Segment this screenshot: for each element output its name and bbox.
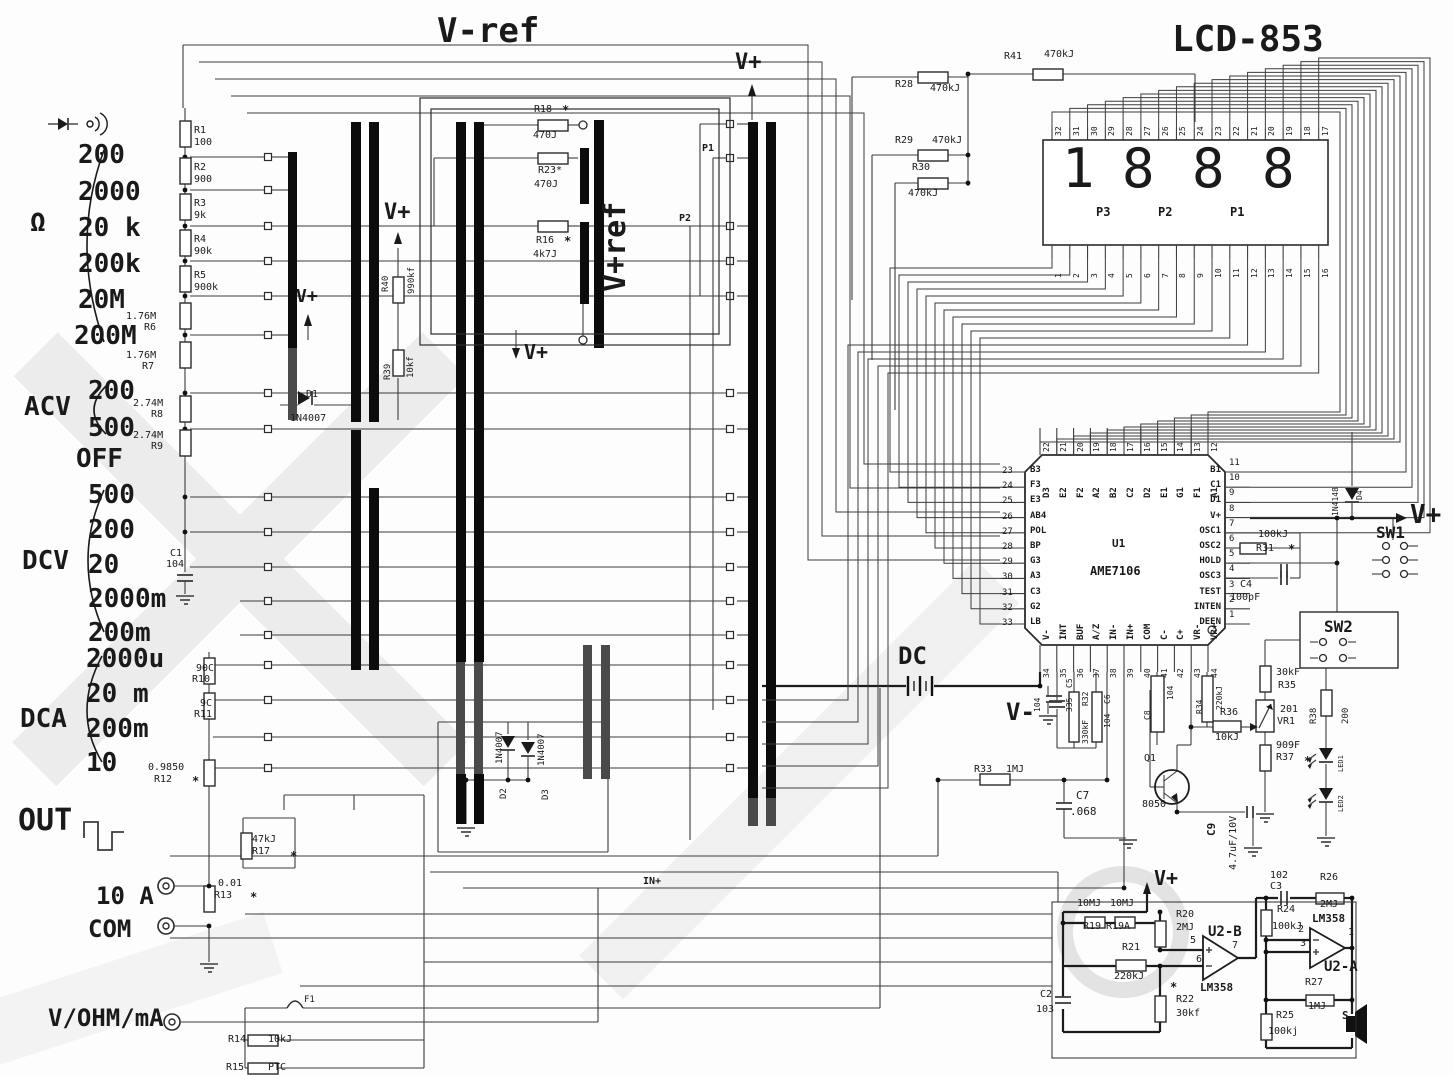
label-ic-pins-bottom-numbers-1: 35	[1060, 668, 1068, 678]
label-components-r20-v: 2MJ	[1176, 923, 1194, 933]
label-components-r14-n: R14	[228, 1035, 246, 1045]
label-ic-pins-top-numbers-8: 14	[1177, 442, 1185, 452]
label-selector-ohm_ranges-5: 200M	[74, 323, 137, 349]
label-components-r11-n: R11	[194, 710, 212, 720]
label-components-r25-v: 100kj	[1268, 1027, 1298, 1037]
label-components-r18-v: 470J	[533, 131, 557, 141]
label-lcd-digits-2: 8	[1192, 142, 1225, 196]
label-ic-pins-bottom-labels-7: C-	[1161, 629, 1170, 640]
label-components-r16-s: *	[564, 235, 571, 247]
label-components-r5-n: R5	[194, 271, 206, 281]
label-lcd-top_pins-14: 18	[1304, 126, 1312, 136]
label-components-r32-n: R32	[1082, 692, 1090, 706]
label-selector-jack_vohmma: V/OHM/mA	[48, 1006, 164, 1030]
ic-ame7106	[1025, 455, 1225, 645]
label-power-vplus: V+	[524, 342, 548, 362]
label-ic-pins-top-labels-3: A2	[1093, 487, 1102, 498]
label-components-r26-n: R26	[1320, 873, 1338, 883]
label-lcd-bottom_pins-14: 15	[1304, 268, 1312, 278]
label-ic-pins-right-labels-10: DEEN	[1199, 618, 1221, 627]
label-components-r41-n: R41	[1004, 52, 1022, 62]
label-ic-pins-bottom-labels-8: C+	[1177, 629, 1186, 640]
label-components-r37-n: R37	[1276, 753, 1294, 763]
label-components-r22-s: *	[1170, 981, 1177, 993]
label-components-r8-v: 2.74M	[133, 399, 163, 409]
label-lcd-bottom_pins-12: 13	[1268, 268, 1276, 278]
label-components-r6-n: R6	[144, 323, 156, 333]
label-lcd-decimal_points-2: P1	[1230, 206, 1244, 218]
label-components-c3-v: 102	[1270, 871, 1288, 881]
label-components-r5-v: 900k	[194, 283, 218, 293]
label-ic-ref: U1	[1112, 538, 1125, 549]
label-ic-pins-bottom-numbers-2: 36	[1077, 668, 1085, 678]
label-selector-dca_label: DCA	[20, 706, 67, 732]
label-ic-pins-left-numbers-4: 27	[1002, 528, 1013, 537]
label-components-r39-n: R39	[384, 364, 393, 380]
label-components-r40-n: R40	[382, 276, 391, 292]
label-ic-pins-top-numbers-7: 15	[1161, 442, 1169, 452]
label-components-d2-n: D2	[500, 788, 509, 799]
label-components-r30-v: 470kJ	[908, 189, 938, 199]
label-components-r34-n: R34	[1196, 700, 1204, 714]
label-ic-pins-top-numbers-10: 12	[1211, 442, 1219, 452]
label-connector-p2: P2	[679, 214, 691, 224]
label-components-r31-n: R31	[1256, 544, 1274, 554]
label-components-d2-v: 1N4007	[496, 731, 505, 764]
label-lcd-bottom_pins-8: 9	[1197, 273, 1205, 278]
label-components-c8-v: 104	[1167, 686, 1175, 700]
label-components-r38-v: 200	[1342, 708, 1351, 724]
label-components-r7-n: R7	[142, 362, 154, 372]
label-components-r21-n: R21	[1122, 943, 1140, 953]
label-ic-pins-top-labels-2: F2	[1077, 487, 1086, 498]
label-ic-pins-right-labels-8: TEST	[1199, 588, 1221, 597]
label-selector-off_label: OFF	[76, 446, 123, 472]
label-lcd-top_pins-15: 17	[1322, 126, 1330, 136]
label-components-r12-v: 0.9850	[148, 763, 184, 773]
label-selector-ohm_ranges-2: 20 k	[78, 215, 141, 241]
label-components-r18-s: *	[562, 104, 569, 116]
label-ic-pins-left-labels-6: G3	[1030, 557, 1041, 566]
label-lcd-bottom_pins-9: 10	[1215, 268, 1223, 278]
label-lcd-bottom_pins-13: 14	[1286, 268, 1294, 278]
label-components-r22-v: 30kf	[1176, 1009, 1200, 1019]
label-lcd-bottom_pins-15: 16	[1322, 268, 1330, 278]
label-components-cv-v: 104	[1034, 698, 1042, 712]
label-power-vplus: V+	[384, 202, 411, 224]
label-ic-pins-right-numbers-5: 6	[1229, 535, 1234, 544]
label-components-r38-n: R38	[1310, 708, 1319, 724]
label-lcd-top_pins-9: 23	[1215, 126, 1223, 136]
label-components-c6-v: 104	[1104, 714, 1112, 728]
label-ic-pins-top-numbers-9: 13	[1194, 442, 1202, 452]
label-lcd-top_pins-11: 21	[1251, 126, 1259, 136]
label-components-r18-n: R18	[534, 105, 552, 115]
label-ic-pins-top-labels-9: F1	[1194, 487, 1203, 498]
label-lcd-bottom_pins-0: 1	[1055, 273, 1063, 278]
label-selector-jack_10a: 10 A	[96, 884, 154, 908]
label-components-r9-n: R9	[151, 442, 163, 452]
label-components-r27-v: 1MJ	[1308, 1002, 1326, 1012]
label-ic-pins-right-labels-3: V+	[1210, 512, 1221, 521]
label-lcd-digits-3: 8	[1262, 142, 1295, 196]
label-selector-dcv_ranges-1: 200	[88, 517, 135, 543]
label-lcd-bottom_pins-3: 4	[1108, 273, 1116, 278]
label-components-r19-n: R19	[1083, 922, 1101, 932]
label-ic-pins-right-numbers-1: 10	[1229, 474, 1240, 483]
label-components-r23-n: R23*	[538, 166, 562, 176]
label-ic-pins-right-numbers-3: 8	[1229, 505, 1234, 514]
label-ic-pins-left-labels-7: A3	[1030, 572, 1041, 581]
label-components-r39-v: 10kf	[407, 356, 416, 378]
label-selector-dca_ranges-3: 10	[86, 750, 117, 776]
label-selector-out_label: OUT	[18, 806, 72, 836]
label-lcd-top_pins-2: 30	[1091, 126, 1099, 136]
label-ic-pins-right-numbers-2: 9	[1229, 489, 1234, 498]
label-ic-pins-top-labels-1: E2	[1060, 487, 1069, 498]
label-components-c4-n: C4	[1240, 580, 1252, 590]
label-amps-speaker: S	[1342, 1010, 1349, 1021]
label-lcd-bottom_pins-5: 6	[1144, 273, 1152, 278]
label-selector-jack_com: COM	[88, 917, 131, 941]
label-ic-pins-left-numbers-0: 23	[1002, 467, 1013, 476]
label-components-c9-n: C9	[1206, 823, 1217, 836]
label-components-c8-n: C8	[1144, 710, 1152, 720]
label-components-r21-v: 220kJ	[1114, 972, 1144, 982]
label-selector-dcv_ranges-4: 200m	[88, 620, 151, 646]
label-components-q1-v: 8050	[1142, 800, 1166, 810]
label-lcd-bottom_pins-6: 7	[1162, 273, 1170, 278]
label-power-dc: DC	[898, 644, 927, 668]
label-ic-pins-top-labels-8: G1	[1177, 487, 1186, 498]
label-ic-pins-left-numbers-7: 30	[1002, 573, 1013, 582]
label-ic-pins-left-labels-8: C3	[1030, 588, 1041, 597]
label-amps-chip: LM358	[1312, 913, 1345, 924]
label-components-r24-n: R24	[1277, 905, 1295, 915]
label-ic-pins-left-numbers-10: 33	[1002, 619, 1013, 628]
label-ic-pins-left-labels-4: POL	[1030, 527, 1046, 536]
label-components-vr1-v: 201	[1280, 705, 1298, 715]
label-lcd-top_pins-6: 26	[1162, 126, 1170, 136]
label-amps-u2b_pins-0: 5	[1190, 936, 1196, 946]
label-ic-pins-right-numbers-0: 11	[1229, 459, 1240, 468]
label-components-r27-n: R27	[1305, 978, 1323, 988]
label-ic-pins-bottom-numbers-9: 43	[1194, 668, 1202, 678]
label-ic-pins-top-labels-7: E1	[1161, 487, 1170, 498]
label-ic-pins-left-labels-0: B3	[1030, 466, 1041, 475]
fuse-f1-icon	[287, 1001, 303, 1008]
label-lcd-top_pins-8: 24	[1197, 126, 1205, 136]
label-components-r6-v: 1.76M	[126, 312, 156, 322]
label-lcd-digits-1: 8	[1122, 142, 1155, 196]
label-power-vplus: V+	[735, 52, 762, 74]
label-components-r41-v: 470kJ	[1044, 50, 1074, 60]
label-power-vplus: V+	[1154, 868, 1178, 888]
label-ic-pins-bottom-labels-4: IN-	[1110, 624, 1119, 640]
label-ic-pins-right-labels-7: OSC3	[1199, 572, 1221, 581]
label-components-r35-n: R35	[1278, 681, 1296, 691]
label-ic-pins-right-labels-9: INTEN	[1194, 603, 1221, 612]
label-amps-u2b: U2-B	[1208, 925, 1242, 939]
label-ic-pins-right-labels-6: HOLD	[1199, 557, 1221, 566]
label-components-c9-v: 4.7uF/10V	[1229, 816, 1239, 870]
label-ic-pins-top-numbers-5: 17	[1127, 442, 1135, 452]
label-lcd-top_pins-3: 29	[1108, 126, 1116, 136]
label-selector-acv_ranges-0: 200	[88, 378, 135, 404]
label-lcd-top_pins-10: 22	[1233, 126, 1241, 136]
label-components-r19a-n: R19A	[1106, 922, 1130, 932]
label-selector-ohm_ranges-1: 2000	[78, 179, 141, 205]
label-amps-u2b_pins-2: 7	[1232, 941, 1238, 951]
label-components-r13-n: R13	[214, 891, 232, 901]
label-ic-pins-bottom-labels-1: INT	[1060, 624, 1069, 640]
label-components-r33-n: R33	[974, 765, 992, 775]
label-ic-pins-right-labels-4: OSC1	[1199, 527, 1221, 536]
label-ic-pins-left-labels-1: F3	[1030, 481, 1041, 490]
label-components-r25-n: R25	[1276, 1011, 1294, 1021]
label-power-in_plus: IN+	[643, 877, 661, 887]
label-components-r13-s: *	[250, 891, 257, 903]
label-amps-u2a_pins-2: 1	[1348, 928, 1354, 938]
label-selector-acv_ranges-1: 500	[88, 415, 135, 441]
label-components-c4-v: 100pF	[1230, 593, 1260, 603]
label-lcd-decimal_points-1: P2	[1158, 206, 1172, 218]
label-components-r2-n: R2	[194, 163, 206, 173]
label-ic-pins-left-numbers-8: 31	[1002, 589, 1013, 598]
label-ic-pins-left-labels-5: BP	[1030, 542, 1041, 551]
label-components-d3-v: 1N4007	[538, 733, 547, 766]
label-selector-dcv_ranges-0: 500	[88, 482, 135, 508]
label-lcd-top_pins-0: 32	[1055, 126, 1063, 136]
label-ic-pins-left-numbers-3: 26	[1002, 513, 1013, 522]
label-components-r29-v: 470kJ	[932, 136, 962, 146]
label-lcd-top_pins-7: 25	[1179, 126, 1187, 136]
label-power-vminus: V-	[1006, 700, 1035, 724]
label-components-d4-n: D4	[1356, 490, 1364, 500]
label-ic-pins-top-labels-0: D3	[1043, 487, 1052, 498]
label-ic-pins-right-numbers-7: 4	[1229, 565, 1234, 574]
label-components-d4-v: 1N4148	[1332, 487, 1340, 516]
label-components-c5-n: C5	[1066, 678, 1074, 688]
label-components-c3-n: C3	[1270, 882, 1282, 892]
label-ic-pins-left-numbers-9: 32	[1002, 604, 1013, 613]
label-ic-pins-top-numbers-3: 19	[1093, 442, 1101, 452]
label-ic-pins-right-labels-5: OSC2	[1199, 542, 1221, 551]
label-lcd-model: LCD-853	[1172, 22, 1324, 58]
label-lcd-top_pins-5: 27	[1144, 126, 1152, 136]
label-ic-pins-bottom-numbers-10: 44	[1211, 668, 1219, 678]
label-components-r1-n: R1	[194, 126, 206, 136]
label-lcd-decimal_points-0: P3	[1096, 206, 1110, 218]
label-selector-ohm_ranges-4: 20M	[78, 287, 125, 313]
label-amps-u2a_pins-1: 3	[1300, 939, 1306, 949]
label-components-r13-v: 0.01	[218, 879, 242, 889]
label-components-r16-n: R16	[536, 236, 554, 246]
label-amps-u2a_pins-0: 2	[1298, 925, 1304, 935]
label-components-r15-v: PTC	[268, 1063, 286, 1073]
label-components-c2-n: C2	[1040, 990, 1052, 1000]
label-ic-pins-right-labels-2: D1	[1210, 496, 1221, 505]
label-components-vr1-n: VR1	[1277, 717, 1295, 727]
label-components-r28-v: 470kJ	[930, 84, 960, 94]
label-ic-pins-top-numbers-6: 16	[1144, 442, 1152, 452]
label-components-c1-n: C1	[170, 549, 182, 559]
schematic-graphics	[0, 0, 1453, 1075]
label-ic-pins-bottom-labels-3: A/Z	[1093, 624, 1102, 640]
label-components-r40-v: 990kf	[408, 267, 417, 294]
label-components-led2-n: LED2	[1338, 795, 1345, 812]
label-lcd-top_pins-12: 20	[1268, 126, 1276, 136]
label-components-r1-v: 100	[194, 138, 212, 148]
label-ic-pins-right-numbers-10: 1	[1229, 611, 1234, 620]
label-lcd-top_pins-1: 31	[1073, 126, 1081, 136]
label-ic-pins-bottom-numbers-0: 34	[1043, 668, 1051, 678]
label-components-f1-n: F1	[304, 996, 315, 1005]
label-components-r10-v: 90C	[196, 664, 214, 674]
label-lcd-bottom_pins-7: 8	[1179, 273, 1187, 278]
label-power-vref_neg: V-ref	[437, 14, 539, 48]
label-power-vplus: V+	[296, 288, 318, 306]
label-components-r22-n: R22	[1176, 995, 1194, 1005]
label-connector-p1: P1	[702, 144, 714, 154]
label-ic-pins-left-labels-10: LB	[1030, 618, 1041, 627]
label-ic-pins-top-labels-5: C2	[1127, 487, 1136, 498]
label-components-c1-v: 104	[166, 560, 184, 570]
label-selector-acv_label: ACV	[24, 394, 71, 420]
label-ic-pins-bottom-labels-0: V-	[1043, 629, 1052, 640]
label-ic-pins-bottom-labels-6: COM	[1144, 624, 1153, 640]
label-ic-pins-left-numbers-6: 29	[1002, 558, 1013, 567]
label-components-r19-v: 10MJ	[1077, 899, 1101, 909]
label-amps-chip: LM358	[1200, 982, 1233, 993]
label-components-r37-s: *	[1304, 755, 1311, 767]
label-components-r31-s: *	[1288, 543, 1295, 555]
label-ic-pins-bottom-numbers-8: 42	[1177, 668, 1185, 678]
label-selector-dcv_ranges-3: 2000m	[88, 586, 166, 612]
label-components-r12-n: R12	[154, 775, 172, 785]
label-ic-pins-top-labels-6: D2	[1144, 487, 1153, 498]
schematic-canvas: Ω200200020 k200k20M200MACV200500OFFDCV50…	[0, 0, 1453, 1075]
label-ic-pins-top-numbers-1: 21	[1060, 442, 1068, 452]
label-ic-pins-top-labels-4: B2	[1110, 487, 1119, 498]
label-components-d3-n: D3	[542, 789, 551, 800]
label-ic-pins-left-labels-9: G2	[1030, 603, 1041, 612]
label-power-vplus: V+	[1410, 502, 1441, 528]
label-components-r14-v: 10kJ	[268, 1035, 292, 1045]
label-components-r36-v: 10kJ	[1215, 733, 1239, 743]
label-components-r11-v: 9C	[200, 699, 212, 709]
label-components-c7-v: .068	[1070, 806, 1097, 817]
label-ic-pins-top-numbers-2: 20	[1077, 442, 1085, 452]
label-ic-pins-right-numbers-6: 5	[1229, 550, 1234, 559]
label-ic-pins-right-numbers-9: 2	[1229, 596, 1234, 605]
label-selector-dca_ranges-0: 2000u	[86, 646, 164, 672]
label-components-c2-v: 103	[1036, 1005, 1054, 1015]
label-ic-pins-left-labels-2: E3	[1030, 496, 1041, 505]
label-components-r20-n: R20	[1176, 910, 1194, 920]
label-components-r4-n: R4	[194, 235, 206, 245]
label-ic-pins-bottom-numbers-6: 40	[1144, 668, 1152, 678]
label-lcd-bottom_pins-2: 3	[1091, 273, 1099, 278]
label-amps-u2b_pins-1: 6	[1196, 955, 1202, 965]
label-ic-pins-left-numbers-1: 24	[1002, 482, 1013, 491]
label-components-r12-s: *	[192, 775, 199, 787]
label-components-r8-n: R8	[151, 410, 163, 420]
label-components-r17-v: 47kJ	[252, 835, 276, 845]
label-ic-pins-bottom-numbers-4: 38	[1110, 668, 1118, 678]
label-components-r23-v: 470J	[534, 180, 558, 190]
label-lcd-top_pins-13: 19	[1286, 126, 1294, 136]
label-ic-part: AME7106	[1090, 565, 1141, 577]
label-components-d1-v: 1N4007	[290, 414, 326, 424]
label-selector-dca_ranges-2: 200m	[86, 716, 149, 742]
label-components-r32-v: 330kF	[1082, 720, 1090, 744]
label-components-r29-n: R29	[895, 136, 913, 146]
label-components-c7-n: C7	[1076, 790, 1089, 801]
label-components-r36-n: R36	[1220, 708, 1238, 718]
label-selector-ohm_symbol: Ω	[30, 210, 46, 236]
label-components-led1-n: LED1	[1338, 755, 1345, 772]
label-ic-pins-bottom-numbers-7: 41	[1161, 668, 1169, 678]
label-selector-dca_ranges-1: 20 m	[86, 681, 149, 707]
label-power-vref_pos: V+ref	[601, 202, 631, 292]
label-components-r9-v: 2.74M	[133, 431, 163, 441]
label-components-q1-n: Q1	[1144, 754, 1156, 764]
label-ic-pins-right-numbers-8: 3	[1229, 581, 1234, 590]
label-components-r37-v: 909F	[1276, 741, 1300, 751]
label-lcd-digits-0: 1	[1062, 142, 1095, 196]
label-ic-pins-top-numbers-0: 22	[1043, 442, 1051, 452]
label-components-r26-v: 2MJ	[1320, 900, 1338, 910]
label-components-r17-s: *	[290, 850, 297, 862]
label-ic-pins-bottom-labels-5: IN+	[1127, 624, 1136, 640]
label-components-r35-v: 30kF	[1276, 668, 1300, 678]
label-components-d1-n: D1	[306, 390, 318, 400]
label-components-r28-n: R28	[895, 80, 913, 90]
label-components-r30-n: R30	[912, 163, 930, 173]
label-ic-pins-right-labels-1: C1	[1210, 481, 1221, 490]
label-switches-sw2: SW2	[1324, 619, 1353, 635]
label-lcd-bottom_pins-10: 11	[1233, 268, 1241, 278]
label-ic-pins-right-numbers-4: 7	[1229, 520, 1234, 529]
label-components-r3-v: 9k	[194, 211, 206, 221]
label-components-r10-n: R10	[192, 675, 210, 685]
label-selector-dcv_label: DCV	[22, 548, 69, 574]
label-ic-pins-left-numbers-5: 28	[1002, 543, 1013, 552]
label-selector-ohm_ranges-3: 200k	[78, 251, 141, 277]
label-lcd-bottom_pins-4: 5	[1126, 273, 1134, 278]
label-ic-pins-bottom-numbers-3: 37	[1093, 668, 1101, 678]
label-selector-dcv_ranges-2: 20	[88, 552, 119, 578]
continuity-icon	[87, 113, 107, 135]
label-lcd-bottom_pins-11: 12	[1251, 268, 1259, 278]
label-ic-pins-bottom-labels-2: BUF	[1077, 624, 1086, 640]
label-components-r19a-v: 10MJ	[1110, 899, 1134, 909]
label-components-r2-v: 900	[194, 175, 212, 185]
label-components-r15-n: R15	[226, 1063, 244, 1073]
label-selector-ohm_ranges-0: 200	[78, 142, 125, 168]
label-lcd-bottom_pins-1: 2	[1073, 273, 1081, 278]
label-components-r7-v: 1.76M	[126, 351, 156, 361]
label-lcd-top_pins-4: 28	[1126, 126, 1134, 136]
label-amps-u2a: U2-A	[1324, 960, 1358, 974]
label-ic-pins-left-labels-3: AB4	[1030, 512, 1046, 521]
label-ic-pins-left-numbers-2: 25	[1002, 497, 1013, 506]
label-components-r3-n: R3	[194, 199, 206, 209]
label-components-r31-v: 100kJ	[1258, 530, 1288, 540]
label-ic-pins-bottom-numbers-5: 39	[1127, 668, 1135, 678]
label-ic-pins-right-labels-0: B1	[1210, 466, 1221, 475]
